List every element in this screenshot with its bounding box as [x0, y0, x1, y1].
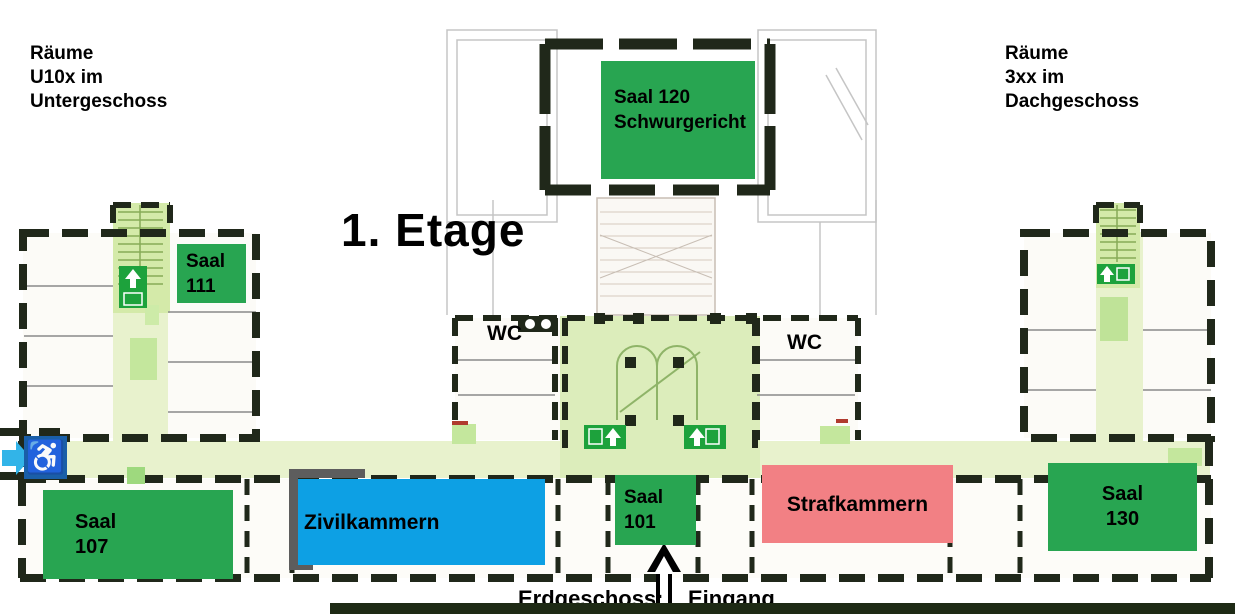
floor-title: 1. Etage [341, 203, 525, 257]
room-label: 101 [624, 510, 696, 535]
note-line: Räume [30, 42, 167, 66]
room-label: Schwurgericht [614, 110, 755, 135]
exit-sign-lobby-left [584, 425, 626, 449]
room-label: 130 [1048, 507, 1197, 532]
room-label: Saal [75, 510, 233, 535]
room-label: Saal [1048, 482, 1197, 507]
room-label: Saal [186, 249, 246, 274]
wc-fixtures [518, 316, 556, 332]
wc-label-left: WC [487, 322, 522, 346]
note-line: U10x im [30, 66, 167, 90]
room-label: Zivilkammern [304, 510, 545, 535]
room-label: Saal [624, 485, 696, 510]
exit-sign-left-wing [119, 266, 147, 308]
wheelchair-icon: ♿ [26, 436, 66, 479]
exit-sign-lobby-right [684, 425, 726, 449]
scan-edge-strip [330, 603, 1235, 614]
room-label: Strafkammern [762, 492, 953, 517]
room-saal-130: Saal 130 [1048, 463, 1197, 551]
room-saal-107: Saal 107 [43, 490, 233, 579]
room-zivilkammern: Zivilkammern [298, 479, 545, 565]
note-dachgeschoss: Räume 3xx im Dachgeschoss [1005, 42, 1139, 114]
room-saal-111: Saal 111 [177, 244, 246, 303]
floor-plan: Räume U10x im Untergeschoss Räume 3xx im… [0, 0, 1235, 614]
room-strafkammern: Strafkammern [762, 465, 953, 543]
room-saal-120-schwurgericht: Saal 120 Schwurgericht [601, 61, 755, 179]
note-line: Dachgeschoss [1005, 90, 1139, 114]
wc-label-right: WC [787, 331, 822, 355]
room-saal-101: Saal 101 [615, 475, 696, 545]
note-line: Untergeschoss [30, 90, 167, 114]
note-line: 3xx im [1005, 66, 1139, 90]
central-stairwell-faint [597, 198, 715, 315]
room-label: 107 [75, 535, 233, 560]
note-line: Räume [1005, 42, 1139, 66]
wheelchair-sign: ♿ [24, 436, 67, 479]
exit-sign-right-wing [1097, 264, 1135, 284]
room-label: Saal 120 [614, 85, 755, 110]
room-label: 111 [186, 274, 246, 299]
note-untergeschoss: Räume U10x im Untergeschoss [30, 42, 167, 114]
